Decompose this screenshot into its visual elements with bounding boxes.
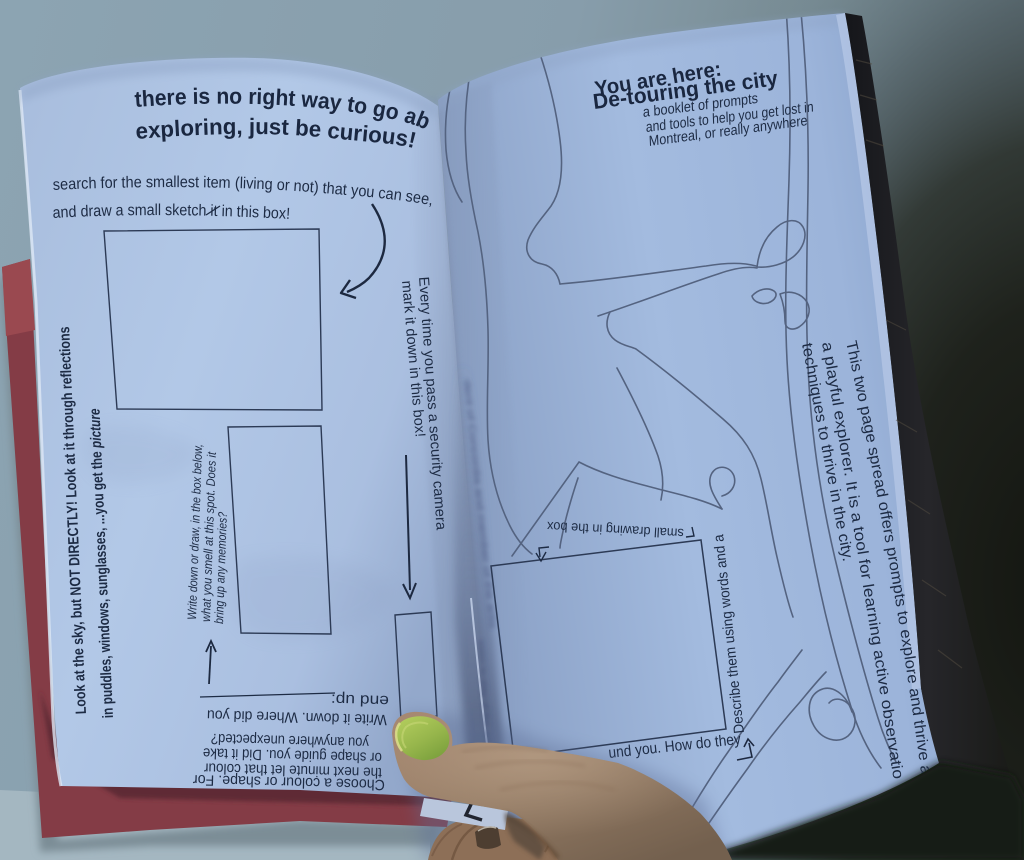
svg-text:end up:: end up: (331, 690, 389, 709)
